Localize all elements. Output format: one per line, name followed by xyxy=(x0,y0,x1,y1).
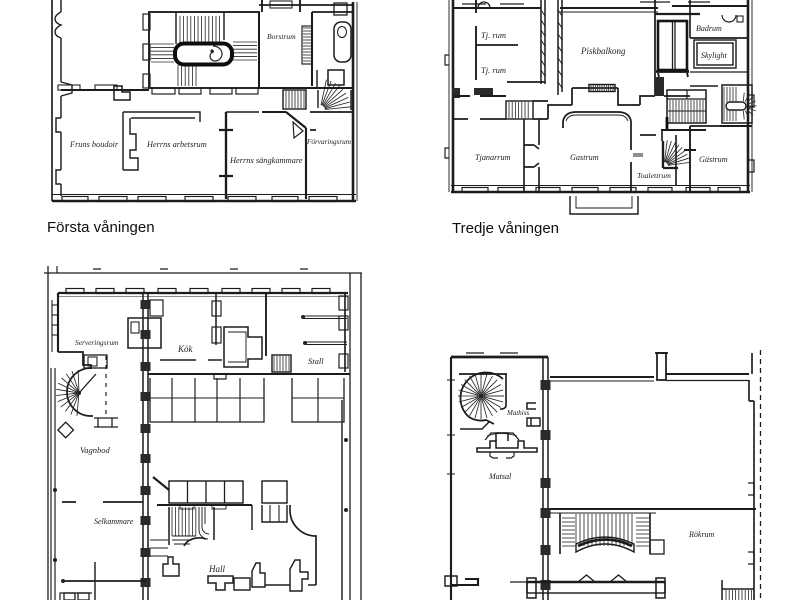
svg-text:Tj. rum: Tj. rum xyxy=(481,65,506,75)
svg-text:Herrns sängkammare: Herrns sängkammare xyxy=(229,156,303,165)
svg-text:Tredje våningen: Tredje våningen xyxy=(452,220,559,237)
svg-text:Herrns arbetsrum: Herrns arbetsrum xyxy=(146,140,207,149)
svg-text:Första våningen: Första våningen xyxy=(47,219,155,236)
svg-text:Kök: Kök xyxy=(177,344,194,354)
svg-text:Tj. rum: Tj. rum xyxy=(481,30,506,40)
svg-text:Gästrum: Gästrum xyxy=(699,155,728,164)
svg-text:Skylight: Skylight xyxy=(701,51,728,60)
svg-text:Rökrum: Rökrum xyxy=(688,530,715,539)
svg-text:Selkammare: Selkammare xyxy=(94,517,134,526)
svg-text:Förvaringsrum: Förvaringsrum xyxy=(306,138,351,146)
svg-text:Piskbalkong: Piskbalkong xyxy=(580,46,626,56)
svg-text:Gastrum: Gastrum xyxy=(570,153,599,162)
svg-text:Vagnbod: Vagnbod xyxy=(80,445,111,455)
svg-text:Badrum: Badrum xyxy=(696,24,722,33)
svg-text:Hall: Hall xyxy=(208,564,226,574)
svg-text:Matsal: Matsal xyxy=(488,472,512,481)
svg-text:Borstrum: Borstrum xyxy=(267,32,296,41)
svg-text:Tjanarrum: Tjanarrum xyxy=(475,153,511,162)
svg-text:Toalettrum: Toalettrum xyxy=(637,171,671,180)
svg-text:Serveringsrum: Serveringsrum xyxy=(75,338,119,347)
svg-text:Mathiss: Mathiss xyxy=(506,409,529,417)
svg-text:Stall: Stall xyxy=(308,356,324,366)
svg-text:Fruns boudoir: Fruns boudoir xyxy=(69,140,119,149)
